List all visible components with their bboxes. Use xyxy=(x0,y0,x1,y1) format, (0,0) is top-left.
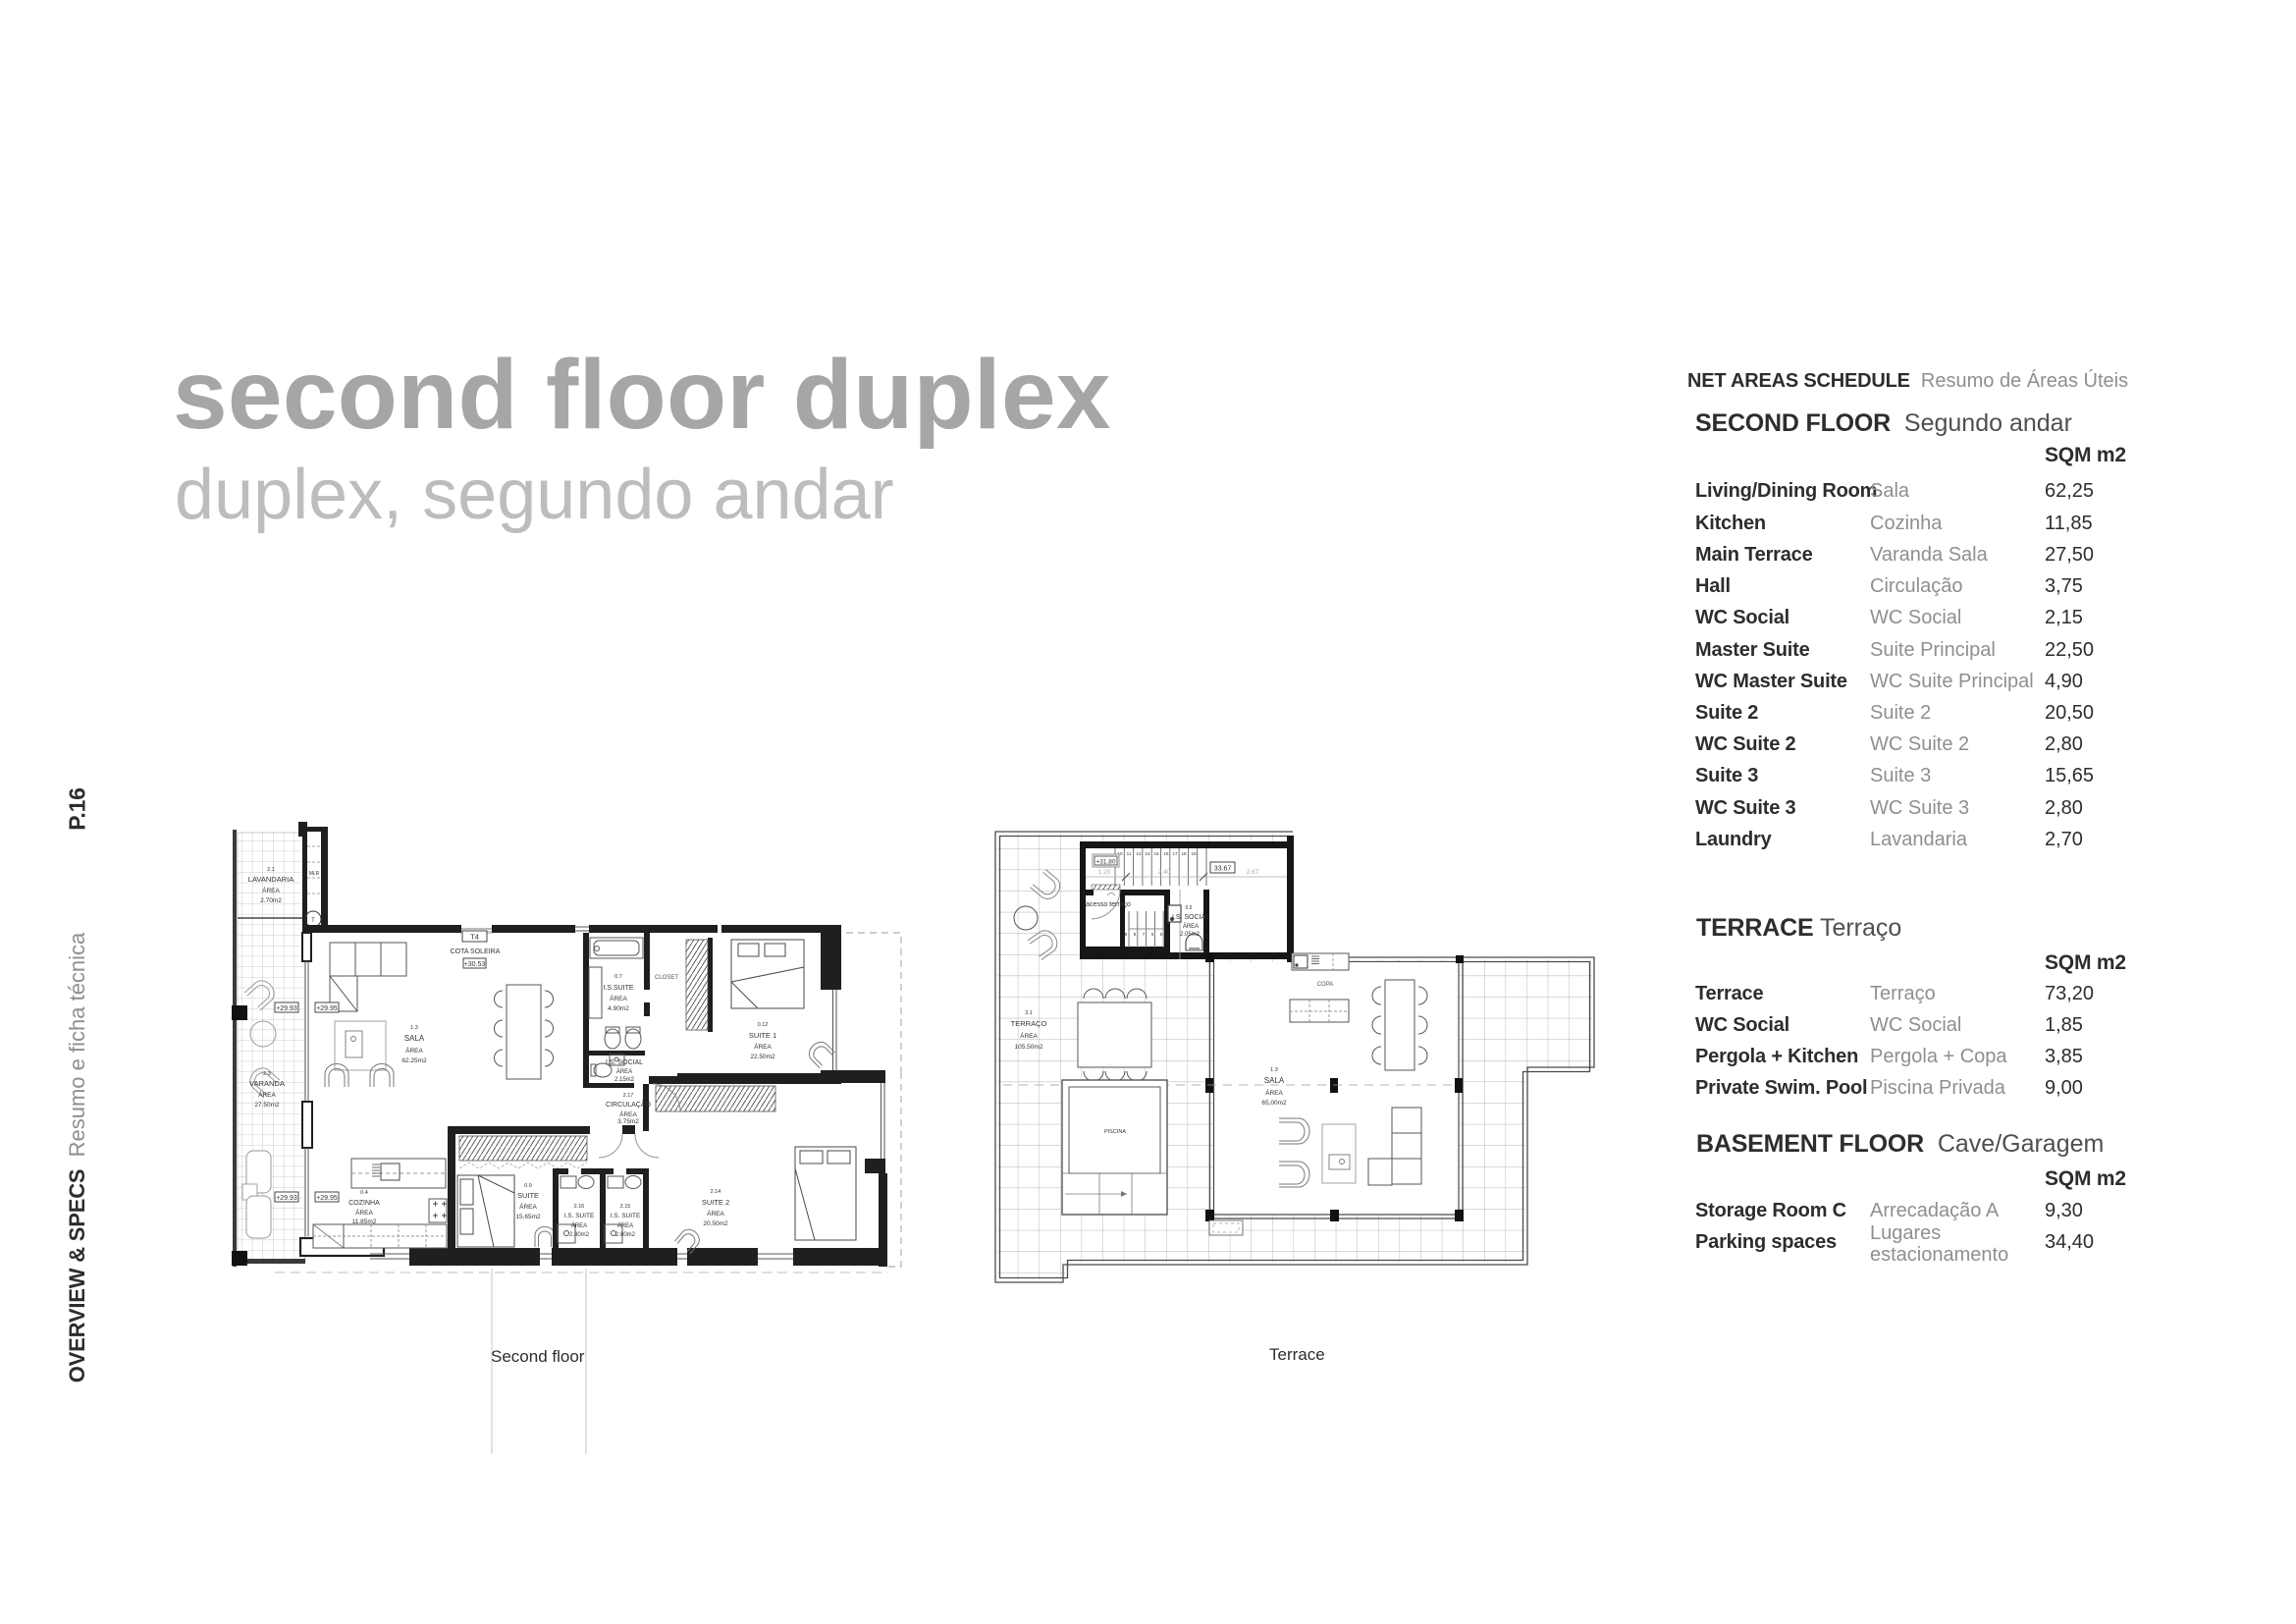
svg-text:14: 14 xyxy=(1145,851,1150,856)
svg-text:2.16: 2.16 xyxy=(574,1204,585,1210)
svg-text:9: 9 xyxy=(1125,932,1128,937)
svg-text:ÁREA: ÁREA xyxy=(707,1209,724,1218)
svg-text:ÁREA: ÁREA xyxy=(610,994,627,1002)
svg-text:13: 13 xyxy=(1136,851,1142,856)
svg-text:ÁREA: ÁREA xyxy=(616,1068,632,1075)
svg-text:ÁREA: ÁREA xyxy=(258,1090,276,1099)
svg-text:+29.93: +29.93 xyxy=(276,1005,297,1012)
svg-text:2.70m2: 2.70m2 xyxy=(260,897,282,904)
svg-text:1.3: 1.3 xyxy=(410,1025,418,1031)
svg-text:VARANDA: VARANDA xyxy=(249,1079,285,1088)
svg-text:2.14: 2.14 xyxy=(711,1189,721,1195)
svg-text:I.S. SOCIAL: I.S. SOCIAL xyxy=(1172,914,1209,921)
svg-text:2.80m2: 2.80m2 xyxy=(615,1232,636,1238)
svg-text:15: 15 xyxy=(1153,851,1159,856)
svg-text:ÁREA: ÁREA xyxy=(262,886,280,894)
svg-text:2.15: 2.15 xyxy=(620,1204,631,1210)
svg-text:22.50m2: 22.50m2 xyxy=(750,1054,775,1060)
svg-text:LAVANDARIA: LAVANDARIA xyxy=(248,875,294,884)
svg-text:ÁREA: ÁREA xyxy=(1183,923,1199,930)
svg-text:I.S. SUITE: I.S. SUITE xyxy=(564,1213,595,1219)
svg-text:8: 8 xyxy=(1134,932,1137,937)
svg-text:2.40: 2.40 xyxy=(1158,869,1171,876)
svg-text:18: 18 xyxy=(1181,851,1187,856)
svg-text:3.75m2: 3.75m2 xyxy=(617,1118,639,1125)
svg-text:2.1: 2.1 xyxy=(267,867,275,873)
svg-text:6: 6 xyxy=(1151,932,1154,937)
svg-text:SUITE: SUITE xyxy=(517,1191,539,1200)
svg-text:62.25m2: 62.25m2 xyxy=(401,1057,427,1064)
svg-text:+30.53: +30.53 xyxy=(464,961,486,968)
svg-text:2.67: 2.67 xyxy=(1247,869,1259,876)
svg-text:+29.95: +29.95 xyxy=(316,1005,338,1012)
svg-text:0.7: 0.7 xyxy=(614,974,622,980)
svg-text:ÁREA: ÁREA xyxy=(1265,1088,1283,1097)
svg-text:MLR: MLR xyxy=(309,871,320,877)
svg-text:27.50m2: 27.50m2 xyxy=(254,1102,280,1109)
svg-text:2.05m2: 2.05m2 xyxy=(1180,932,1201,938)
svg-text:2.15m2: 2.15m2 xyxy=(614,1077,635,1083)
svg-text:0.12: 0.12 xyxy=(758,1022,769,1028)
svg-text:1.3: 1.3 xyxy=(1270,1067,1278,1073)
svg-text:15.65m2: 15.65m2 xyxy=(515,1214,541,1220)
svg-text:I.S.SUITE: I.S.SUITE xyxy=(603,985,633,992)
svg-text:17: 17 xyxy=(1172,851,1178,856)
svg-text:4.90m2: 4.90m2 xyxy=(608,1005,629,1012)
svg-text:T4: T4 xyxy=(470,933,479,942)
svg-text:ÁREA: ÁREA xyxy=(405,1046,423,1055)
svg-text:3.1: 3.1 xyxy=(1025,1010,1033,1016)
svg-text:105.50m2: 105.50m2 xyxy=(1015,1044,1043,1051)
svg-text:33.67: 33.67 xyxy=(1214,866,1232,873)
svg-text:11.85m2: 11.85m2 xyxy=(352,1218,377,1225)
svg-text:acesso terraço: acesso terraço xyxy=(1086,901,1131,908)
svg-text:11: 11 xyxy=(1127,851,1132,856)
svg-text:0.5: 0.5 xyxy=(1186,905,1193,911)
svg-text:+29.95: +29.95 xyxy=(316,1195,338,1202)
svg-text:5: 5 xyxy=(1160,932,1163,937)
svg-text:SUITE 1: SUITE 1 xyxy=(749,1031,776,1040)
svg-text:T: T xyxy=(311,918,315,924)
svg-text:CLOSET: CLOSET xyxy=(655,975,678,981)
svg-text:I.S. SOCIAL: I.S. SOCIAL xyxy=(606,1059,643,1066)
svg-text:0.4: 0.4 xyxy=(360,1190,368,1196)
svg-text:ÁREA: ÁREA xyxy=(519,1202,537,1211)
svg-text:65,00m2: 65,00m2 xyxy=(1261,1100,1287,1107)
svg-text:ÁREA: ÁREA xyxy=(619,1110,637,1118)
svg-text:7: 7 xyxy=(1143,932,1146,937)
svg-text:TERRAÇO: TERRAÇO xyxy=(1011,1019,1047,1028)
svg-text:16: 16 xyxy=(1163,851,1169,856)
svg-text:COTA SOLEIRA: COTA SOLEIRA xyxy=(451,948,501,955)
svg-text:ÁREA: ÁREA xyxy=(617,1222,633,1229)
svg-text:1.20: 1.20 xyxy=(1098,869,1111,876)
svg-text:2.3: 2.3 xyxy=(263,1071,271,1077)
svg-text:CIRCULAÇÃO: CIRCULAÇÃO xyxy=(606,1100,651,1109)
svg-text:2.17: 2.17 xyxy=(623,1093,634,1099)
svg-text:I.S. SUITE: I.S. SUITE xyxy=(611,1213,641,1219)
svg-text:2.80m2: 2.80m2 xyxy=(569,1232,590,1238)
svg-text:PISCINA: PISCINA xyxy=(1104,1129,1126,1135)
svg-text:SUITE 2: SUITE 2 xyxy=(702,1198,729,1207)
svg-text:ÁREA: ÁREA xyxy=(355,1208,373,1217)
svg-text:0.9: 0.9 xyxy=(524,1183,532,1189)
svg-text:ÁREA: ÁREA xyxy=(1020,1031,1038,1040)
svg-text:SALA: SALA xyxy=(404,1034,425,1043)
svg-text:COZINHA: COZINHA xyxy=(348,1200,380,1207)
svg-text:ÁREA: ÁREA xyxy=(571,1222,587,1229)
svg-text:+29.93: +29.93 xyxy=(276,1195,297,1202)
svg-text:+31.80: +31.80 xyxy=(1095,859,1115,866)
svg-text:20.50m2: 20.50m2 xyxy=(703,1220,728,1227)
svg-text:SALA: SALA xyxy=(1264,1076,1285,1085)
svg-text:19: 19 xyxy=(1191,851,1197,856)
svg-text:COPA: COPA xyxy=(1317,982,1334,988)
svg-text:ÁREA: ÁREA xyxy=(754,1042,772,1051)
